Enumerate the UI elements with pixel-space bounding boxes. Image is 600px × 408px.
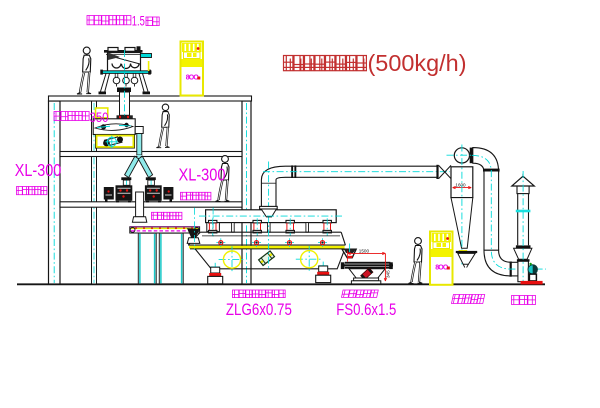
svg-text:FS0.6x1.5: FS0.6x1.5 xyxy=(336,300,396,319)
svg-text:350: 350 xyxy=(90,110,109,125)
svg-text:1600: 1600 xyxy=(455,182,466,187)
svg-text:1.5: 1.5 xyxy=(132,14,145,29)
svg-text:XL-300: XL-300 xyxy=(15,160,62,180)
svg-text:ZLG6x0.75: ZLG6x0.75 xyxy=(226,300,292,319)
svg-text:XL-300: XL-300 xyxy=(179,165,226,185)
svg-text:1500: 1500 xyxy=(359,249,370,254)
svg-text:(500kg/h): (500kg/h) xyxy=(368,50,467,76)
svg-text:345: 345 xyxy=(386,270,391,278)
